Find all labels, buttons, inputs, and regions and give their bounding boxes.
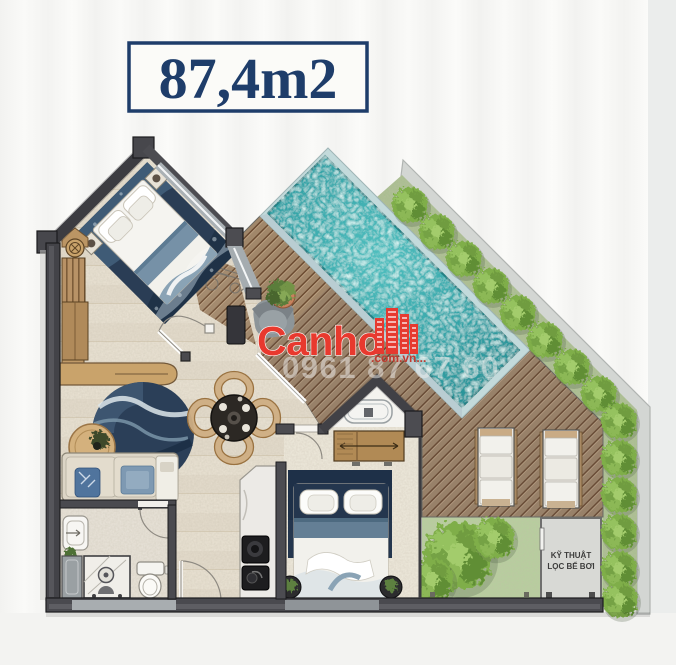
svg-text:KỸ THUẬT: KỸ THUẬT bbox=[551, 551, 592, 560]
svg-text:LỌC BỂ BƠI: LỌC BỂ BƠI bbox=[547, 562, 594, 571]
svg-text:.com.vn...: .com.vn... bbox=[371, 351, 426, 365]
svg-text:87,4m2: 87,4m2 bbox=[159, 46, 338, 111]
svg-text:Canho: Canho bbox=[257, 318, 382, 364]
